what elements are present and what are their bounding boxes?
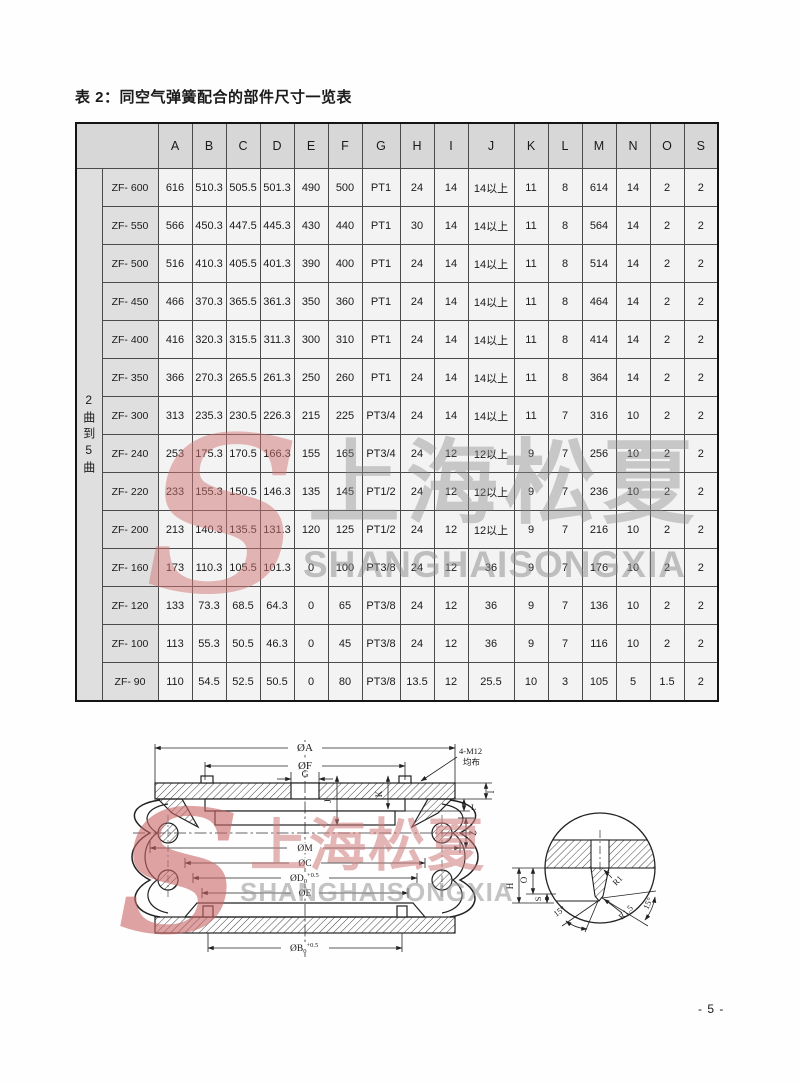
table-cell: 501.3 [260, 169, 294, 207]
table-cell: 135.5 [226, 511, 260, 549]
row-group-label: 2曲到5曲 [76, 169, 102, 702]
table-cell: 8 [548, 169, 582, 207]
table-cell: 12 [434, 587, 468, 625]
table-cell: 50.5 [260, 663, 294, 702]
table-cell: 13.5 [400, 663, 434, 702]
table-cell: 24 [400, 549, 434, 587]
table-cell: 24 [400, 435, 434, 473]
table-cell: 2 [684, 511, 718, 549]
table-cell: 55.3 [192, 625, 226, 663]
table-cell: 2 [650, 283, 684, 321]
column-header: C [226, 123, 260, 169]
table-cell: 7 [548, 549, 582, 587]
column-header: H [400, 123, 434, 169]
table-cell: 235.3 [192, 397, 226, 435]
table-cell: PT3/4 [362, 397, 400, 435]
corner-cell [76, 123, 158, 169]
table-cell: 2 [650, 245, 684, 283]
table-cell: 24 [400, 359, 434, 397]
table-cell: 8 [548, 359, 582, 397]
table-cell: 5 [616, 663, 650, 702]
watermark-chinese-bottom: 上海松夏 [250, 818, 486, 875]
table-cell: 24 [400, 245, 434, 283]
model-name-cell: ZF- 550 [102, 207, 158, 245]
table-cell: 65 [328, 587, 362, 625]
detail-label-r15: R1.5 [616, 903, 635, 922]
table-cell: 2 [650, 397, 684, 435]
table-cell: 2 [684, 245, 718, 283]
detail-label-o: O [519, 876, 529, 883]
table-cell: 10 [514, 663, 548, 702]
bolt-left [201, 776, 213, 783]
table-cell: 213 [158, 511, 192, 549]
table-cell: 14 [616, 169, 650, 207]
table-cell: 490 [294, 169, 328, 207]
model-name-cell: ZF- 200 [102, 511, 158, 549]
table-cell: 500 [328, 169, 362, 207]
table-row: ZF- 550566450.3447.5445.3430440PT1301414… [76, 207, 718, 245]
table-cell: 405.5 [226, 245, 260, 283]
label-masks [281, 742, 329, 953]
table-cell: 2 [684, 663, 718, 702]
table-cell: 36 [468, 587, 514, 625]
table-row: ZF- 12013373.368.564.3065PT3/82412369713… [76, 587, 718, 625]
table-cell: 133 [158, 587, 192, 625]
table-cell: 14 [434, 169, 468, 207]
model-name-cell: ZF- 350 [102, 359, 158, 397]
table-cell: 2 [684, 397, 718, 435]
table-cell: 14以上 [468, 359, 514, 397]
table-cell: 150.5 [226, 473, 260, 511]
table-cell: 10 [616, 473, 650, 511]
table-row: ZF- 500516410.3405.5401.3390400PT1241414… [76, 245, 718, 283]
table-cell: 24 [400, 321, 434, 359]
table-cell: PT3/8 [362, 625, 400, 663]
dimension-table: ABCDEFGHIJKLMNOS 2曲到5曲ZF- 600616510.3505… [75, 122, 719, 702]
table-cell: 140.3 [192, 511, 226, 549]
table-cell: PT1 [362, 207, 400, 245]
column-header: O [650, 123, 684, 169]
table-cell: 12以上 [468, 435, 514, 473]
table-cell: 68.5 [226, 587, 260, 625]
table-cell: 11 [514, 321, 548, 359]
column-header: A [158, 123, 192, 169]
table-cell: 24 [400, 625, 434, 663]
dim-label-oe: ØE [299, 889, 312, 899]
table-cell: 25.5 [468, 663, 514, 702]
table-cell: 7 [548, 397, 582, 435]
table-cell: 14 [434, 359, 468, 397]
table-cell: 14 [616, 321, 650, 359]
table-cell: 2 [650, 207, 684, 245]
model-name-cell: ZF- 400 [102, 321, 158, 359]
songxia-logo-watermark-bottom: S [118, 788, 241, 958]
table-cell: 311.3 [260, 321, 294, 359]
table-cell: 24 [400, 397, 434, 435]
table-cell: 0 [294, 587, 328, 625]
dim-label-l: L [471, 802, 476, 812]
table-cell: 265.5 [226, 359, 260, 397]
table-cell: 136 [582, 587, 616, 625]
table-cell: 2 [650, 549, 684, 587]
table-cell: 24 [400, 283, 434, 321]
table-cell: 0 [294, 625, 328, 663]
table-cell: 7 [548, 625, 582, 663]
table-cell: 11 [514, 359, 548, 397]
table-cell: 225 [328, 397, 362, 435]
table-cell: 260 [328, 359, 362, 397]
table-cell: 8 [548, 207, 582, 245]
table-cell: 12以上 [468, 473, 514, 511]
table-cell: 14以上 [468, 207, 514, 245]
column-header: E [294, 123, 328, 169]
table-cell: 2 [684, 359, 718, 397]
table-cell: 2 [684, 549, 718, 587]
table-cell: 2 [684, 207, 718, 245]
table-cell: 2 [650, 587, 684, 625]
table-cell: 10 [616, 397, 650, 435]
watermark-english-bottom: SHANGHAISONGXIA [240, 879, 514, 905]
table-cell: 105 [582, 663, 616, 702]
table-cell: 390 [294, 245, 328, 283]
table-row: ZF- 350366270.3265.5261.3250260PT1241414… [76, 359, 718, 397]
table-cell: 24 [400, 169, 434, 207]
table-cell: 73.3 [192, 587, 226, 625]
table-cell: 165 [328, 435, 362, 473]
table-cell: 9 [514, 511, 548, 549]
table-cell: PT3/8 [362, 663, 400, 702]
bolt-note-line2: 均布 [463, 757, 480, 767]
model-name-cell: ZF- 100 [102, 625, 158, 663]
dim-label-z: Z [468, 830, 478, 836]
table-cell: 12 [434, 435, 468, 473]
table-cell: 24 [400, 587, 434, 625]
table-cell: PT1 [362, 169, 400, 207]
table-cell: 12 [434, 549, 468, 587]
table-cell: 14以上 [468, 397, 514, 435]
column-header: N [616, 123, 650, 169]
table-cell: 256 [582, 435, 616, 473]
table-cell: 170.5 [226, 435, 260, 473]
table-cell: 175.3 [192, 435, 226, 473]
table-cell: 24 [400, 473, 434, 511]
dim-label-oc: ØC [298, 859, 311, 869]
table-cell: 7 [548, 435, 582, 473]
dim-label-oa: ØA [297, 742, 313, 754]
model-name-cell: ZF- 160 [102, 549, 158, 587]
table-cell: 10 [616, 625, 650, 663]
table-cell: 616 [158, 169, 192, 207]
column-header: J [468, 123, 514, 169]
table-cell: 226.3 [260, 397, 294, 435]
table-cell: 14 [616, 207, 650, 245]
table-cell: 250 [294, 359, 328, 397]
main-section-view [132, 776, 478, 933]
table-cell: 0 [294, 663, 328, 702]
detail-label-h: H [505, 882, 515, 889]
table-cell: 36 [468, 549, 514, 587]
table-row: ZF- 220233155.3150.5146.3135145PT1/22412… [76, 473, 718, 511]
table-row: ZF- 450466370.3365.5361.3350360PT1241414… [76, 283, 718, 321]
table-cell: 176 [582, 549, 616, 587]
table-cell: 131.3 [260, 511, 294, 549]
table-cell: 400 [328, 245, 362, 283]
table-cell: 24 [400, 511, 434, 549]
column-header: L [548, 123, 582, 169]
table-cell: 7 [548, 473, 582, 511]
table-cell: PT1 [362, 359, 400, 397]
table-cell: 270.3 [192, 359, 226, 397]
bolt-right [399, 776, 411, 783]
table-cell: 113 [158, 625, 192, 663]
table-cell: 366 [158, 359, 192, 397]
table-cell: 11 [514, 207, 548, 245]
table-cell: 110 [158, 663, 192, 702]
table-cell: 45 [328, 625, 362, 663]
table-cell: PT1/2 [362, 511, 400, 549]
table-cell: 440 [328, 207, 362, 245]
column-header: S [684, 123, 718, 169]
table-row: ZF- 400416320.3315.5311.3300310PT1241414… [76, 321, 718, 359]
table-cell: 36 [468, 625, 514, 663]
table-cell: 166.3 [260, 435, 294, 473]
table-cell: 0 [294, 549, 328, 587]
table-cell: 416 [158, 321, 192, 359]
table-cell: 14以上 [468, 283, 514, 321]
table-body: 2曲到5曲ZF- 600616510.3505.5501.3490500PT12… [76, 169, 718, 702]
table-cell: 105.5 [226, 549, 260, 587]
table-cell: 410.3 [192, 245, 226, 283]
table-cell: 12以上 [468, 511, 514, 549]
detail-label-angle-right: 15° [641, 896, 655, 911]
table-cell: 9 [514, 625, 548, 663]
table-cell: 2 [684, 321, 718, 359]
table-cell: PT3/8 [362, 549, 400, 587]
table-cell: 350 [294, 283, 328, 321]
table-cell: 230.5 [226, 397, 260, 435]
table-cell: 9 [514, 473, 548, 511]
table-cell: 30 [400, 207, 434, 245]
table-cell: 2 [650, 625, 684, 663]
table-cell: 2 [684, 283, 718, 321]
model-name-cell: ZF- 500 [102, 245, 158, 283]
table-cell: 320.3 [192, 321, 226, 359]
table-cell: 361.3 [260, 283, 294, 321]
table-cell: 2 [684, 473, 718, 511]
table-cell: 2 [650, 321, 684, 359]
table-row: ZF- 200213140.3135.5131.3120125PT1/22412… [76, 511, 718, 549]
table-row: ZF- 160173110.3105.5101.30100PT3/8241236… [76, 549, 718, 587]
table-row: 2曲到5曲ZF- 600616510.3505.5501.3490500PT12… [76, 169, 718, 207]
table-cell: 564 [582, 207, 616, 245]
table-cell: 12 [434, 511, 468, 549]
table-cell: 1.5 [650, 663, 684, 702]
dim-label-of: ØF [298, 760, 312, 772]
table-cell: 145 [328, 473, 362, 511]
table-cell: 11 [514, 169, 548, 207]
model-name-cell: ZF- 220 [102, 473, 158, 511]
table-cell: 466 [158, 283, 192, 321]
dim-label-k: K [374, 790, 384, 797]
table-cell: 300 [294, 321, 328, 359]
model-name-cell: ZF- 240 [102, 435, 158, 473]
table-cell: 414 [582, 321, 616, 359]
detail-label-s: S [533, 896, 543, 901]
dim-label-od: ØD0+0.5 [290, 872, 319, 885]
table-row: ZF- 300313235.3230.5226.3215225PT3/42414… [76, 397, 718, 435]
table-cell: 155.3 [192, 473, 226, 511]
table-cell: 14 [434, 321, 468, 359]
table-cell: PT1 [362, 245, 400, 283]
table-cell: 10 [616, 435, 650, 473]
table-cell: 80 [328, 663, 362, 702]
page-number: - 5 - [698, 1002, 724, 1016]
dimension-lines [150, 744, 492, 952]
table-cell: 447.5 [226, 207, 260, 245]
catalog-page: 表 2：同空气弹簧配合的部件尺寸一览表 ABCDEFGHIJKLMNOS 2曲到… [0, 0, 800, 1085]
column-header: K [514, 123, 548, 169]
table-cell: 11 [514, 245, 548, 283]
table-cell: 365.5 [226, 283, 260, 321]
detail-label-angle-left: 15° [551, 904, 566, 919]
table-cell: 110.3 [192, 549, 226, 587]
dim-label-ob: ØB0+0.5 [290, 942, 318, 955]
table-cell: 12 [434, 473, 468, 511]
table-cell: 101.3 [260, 549, 294, 587]
table-cell: 54.5 [192, 663, 226, 702]
table-cell: 9 [514, 435, 548, 473]
table-cell: 12 [434, 625, 468, 663]
detail-circle-view: H O S R1 R1.5 15° 15° [505, 813, 656, 932]
model-name-cell: ZF- 120 [102, 587, 158, 625]
table-cell: 430 [294, 207, 328, 245]
table-cell: 2 [684, 169, 718, 207]
table-cell: 100 [328, 549, 362, 587]
table-cell: 52.5 [226, 663, 260, 702]
table-cell: PT3/8 [362, 587, 400, 625]
table-cell: 14 [434, 283, 468, 321]
table-cell: 370.3 [192, 283, 226, 321]
table-cell: 360 [328, 283, 362, 321]
table-row: ZF- 9011054.552.550.5080PT3/813.51225.51… [76, 663, 718, 702]
table-cell: 614 [582, 169, 616, 207]
table-cell: 116 [582, 625, 616, 663]
table-cell: 2 [650, 511, 684, 549]
table-row: ZF- 10011355.350.546.3045PT3/82412369711… [76, 625, 718, 663]
model-name-cell: ZF- 450 [102, 283, 158, 321]
table-cell: 401.3 [260, 245, 294, 283]
table-cell: 2 [650, 473, 684, 511]
table-cell: 125 [328, 511, 362, 549]
table-cell: 14 [434, 207, 468, 245]
column-header: M [582, 123, 616, 169]
dim-label-i: I [486, 791, 496, 794]
model-name-cell: ZF- 300 [102, 397, 158, 435]
table-cell: 505.5 [226, 169, 260, 207]
table-cell: 236 [582, 473, 616, 511]
table-cell: 8 [548, 245, 582, 283]
table-cell: 464 [582, 283, 616, 321]
table-cell: 516 [158, 245, 192, 283]
dim-label-om: ØM [297, 844, 313, 854]
centerlines [133, 740, 477, 958]
table-cell: 64.3 [260, 587, 294, 625]
table-cell: 10 [616, 549, 650, 587]
table-cell: 514 [582, 245, 616, 283]
table-cell: 155 [294, 435, 328, 473]
table-cell: 14以上 [468, 321, 514, 359]
table-cell: 10 [616, 511, 650, 549]
table-cell: 253 [158, 435, 192, 473]
table-cell: 310 [328, 321, 362, 359]
table-cell: 135 [294, 473, 328, 511]
table-cell: 11 [514, 397, 548, 435]
table-cell: 14以上 [468, 245, 514, 283]
table-cell: 50.5 [226, 625, 260, 663]
dim-label-j: J [323, 799, 333, 803]
column-header: B [192, 123, 226, 169]
table-cell: PT3/4 [362, 435, 400, 473]
table-cell: 2 [650, 435, 684, 473]
table-cell: PT1 [362, 321, 400, 359]
bolt-note-line1: 4-M12 [459, 746, 482, 756]
column-header: I [434, 123, 468, 169]
table-cell: 313 [158, 397, 192, 435]
table-cell: 14 [434, 245, 468, 283]
table-cell: PT1 [362, 283, 400, 321]
page-title: 表 2：同空气弹簧配合的部件尺寸一览表 [75, 86, 352, 107]
detail-label-r1: R1 [610, 873, 624, 887]
table-cell: 316 [582, 397, 616, 435]
table-header-row: ABCDEFGHIJKLMNOS [76, 123, 718, 169]
table-cell: 2 [650, 359, 684, 397]
column-header: D [260, 123, 294, 169]
table-cell: 46.3 [260, 625, 294, 663]
table-cell: 120 [294, 511, 328, 549]
table-cell: 364 [582, 359, 616, 397]
table-cell: 216 [582, 511, 616, 549]
table-cell: 8 [548, 321, 582, 359]
table-cell: 14以上 [468, 169, 514, 207]
table-cell: 2 [684, 587, 718, 625]
table-cell: 146.3 [260, 473, 294, 511]
table-cell: 261.3 [260, 359, 294, 397]
table-cell: 14 [616, 245, 650, 283]
table-cell: 12 [434, 663, 468, 702]
table-cell: 14 [616, 283, 650, 321]
model-name-cell: ZF- 90 [102, 663, 158, 702]
column-header: G [362, 123, 400, 169]
table-cell: 9 [514, 549, 548, 587]
table-cell: 173 [158, 549, 192, 587]
table-cell: 2 [684, 625, 718, 663]
table-cell: 315.5 [226, 321, 260, 359]
table-cell: 566 [158, 207, 192, 245]
table-cell: 510.3 [192, 169, 226, 207]
table-cell: 9 [514, 587, 548, 625]
table-cell: 215 [294, 397, 328, 435]
table-cell: 7 [548, 587, 582, 625]
table-cell: 450.3 [192, 207, 226, 245]
table-cell: 14 [616, 359, 650, 397]
table-cell: 2 [684, 435, 718, 473]
table-row: ZF- 240253175.3170.5166.3155165PT3/42412… [76, 435, 718, 473]
column-header: F [328, 123, 362, 169]
table-cell: 14 [434, 397, 468, 435]
table-cell: 7 [548, 511, 582, 549]
dim-label-g: G [302, 770, 309, 780]
table-cell: PT1/2 [362, 473, 400, 511]
